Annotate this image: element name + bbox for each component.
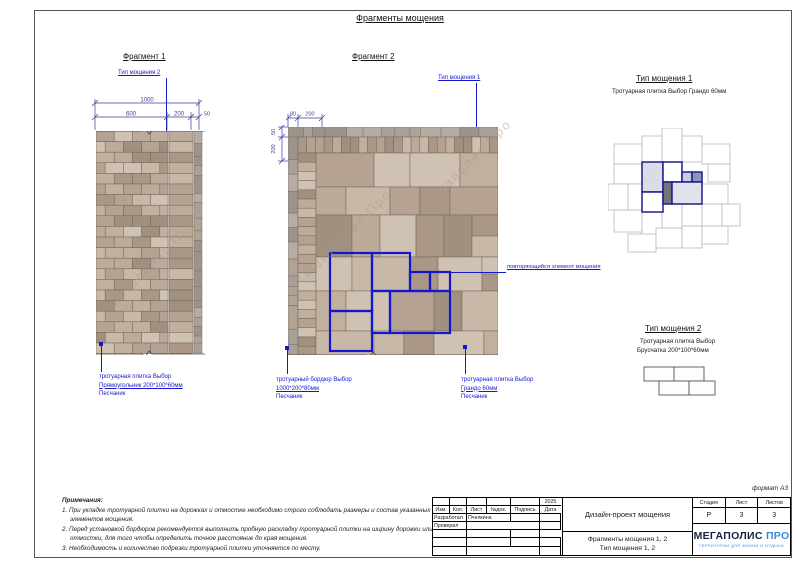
fragment2-border-leader bbox=[287, 350, 288, 374]
tb-cell bbox=[467, 530, 511, 538]
title-block: 2025 Изм. Кол. Лист №док. Подпись Дата Р… bbox=[432, 497, 791, 556]
sheet-title-line2: Тип мощения 1, 2 bbox=[600, 544, 655, 553]
logo-name-2: ПРО bbox=[766, 530, 789, 542]
fragment1-note-line2: Прямоугольник 200*100*60мм bbox=[99, 382, 183, 391]
fragment1-note: тротуарная плитка Выбор Прямоугольник 20… bbox=[99, 373, 183, 399]
tb-cell bbox=[511, 498, 540, 506]
dim-left-50: 50 bbox=[271, 129, 277, 135]
tb-cell bbox=[467, 498, 487, 506]
fragment1-note-leader bbox=[101, 346, 102, 372]
fragment2-tile-note-line1: тротуарная плитка Выбор bbox=[461, 376, 533, 385]
stage-header-row: Стадия Лист Листов bbox=[693, 498, 790, 508]
tb-cell bbox=[511, 547, 540, 555]
sheets-value: 3 bbox=[758, 508, 790, 523]
fragment2-border-note-line2: 1000*200*80мм bbox=[276, 385, 352, 394]
tb-cell bbox=[433, 530, 467, 538]
dim-top-80: 80 bbox=[290, 112, 296, 118]
notes-item-2: 2. Перед установкой бордюров рекомендует… bbox=[62, 525, 434, 544]
fragment2-border-note-line1: тротуарный бордюр Выбор bbox=[276, 376, 352, 385]
logo-name-1: МЕГАПОЛИС bbox=[694, 530, 763, 542]
tb-col-sign: Подпись bbox=[511, 506, 540, 514]
logo-tagline: ТЕРРИТОРИИ ДЛЯ ЖИЗНИ И ОТДЫХА bbox=[699, 543, 784, 548]
tb-cell bbox=[467, 547, 511, 555]
tb-cell bbox=[511, 538, 540, 546]
tb-cell bbox=[450, 498, 467, 506]
notes-item-1: 1. При укладке тротуарной плитки на доро… bbox=[62, 506, 434, 525]
tb-col-kol: Кол. bbox=[450, 506, 467, 514]
fragment2-tile-note: тротуарная плитка Выбор Грандо 60мм Песч… bbox=[461, 376, 533, 402]
tb-cell bbox=[433, 547, 467, 555]
tb-cell bbox=[511, 514, 540, 522]
type1-diagram bbox=[608, 128, 748, 258]
tb-cell bbox=[433, 538, 467, 546]
title-block-center: Дизайн-проект мощения Фрагменты мощения … bbox=[563, 498, 693, 555]
fragment1-dimensions: 1000 600 200 50 bbox=[86, 96, 218, 132]
tb-cell bbox=[540, 514, 561, 522]
stage-value-row: Р 3 3 bbox=[693, 508, 790, 524]
tb-cell bbox=[467, 538, 511, 546]
type2-line2: Брусчатка 200*100*60мм bbox=[637, 347, 709, 354]
fragment2-type-label: Тип мощения 1 bbox=[438, 75, 480, 81]
tb-checked-label: Проверил bbox=[433, 522, 467, 530]
type2-line1: Тротуарная плитка Выбор bbox=[640, 338, 715, 345]
tb-developed-label: Разработал bbox=[433, 514, 467, 522]
fragment2-top-dimensions: 80 200 bbox=[286, 104, 350, 128]
dim-top-200: 200 bbox=[305, 112, 314, 118]
fragment2-left-dimensions: 50 200 bbox=[262, 125, 288, 189]
fragment1-type-label: Тип мощения 2 bbox=[118, 70, 160, 76]
fragment2-border-note: тротуарный бордюр Выбор 1000*200*80мм Пе… bbox=[276, 376, 352, 402]
format-label: формат А3 bbox=[700, 485, 788, 492]
stage-value: Р bbox=[693, 508, 726, 523]
sheets-label: Листов bbox=[758, 498, 790, 507]
fragment1-title: Фрагмент 1 bbox=[123, 52, 166, 61]
title-block-revision-table: 2025 Изм. Кол. Лист №док. Подпись Дата Р… bbox=[433, 498, 563, 555]
company-logo: МЕГАПОЛИС ПРО ТЕРРИТОРИИ ДЛЯ ЖИЗНИ И ОТД… bbox=[693, 524, 790, 555]
fragment2-tile-leader bbox=[465, 349, 466, 374]
fragment2-tile-note-line3: Песчаник bbox=[461, 393, 533, 402]
type2-title: Тип мощения 2 bbox=[645, 324, 701, 333]
repeat-element-label: повторяющийся элемент мощения bbox=[507, 264, 601, 270]
notes-block: Примечания: 1. При укладке тротуарной пл… bbox=[62, 496, 434, 554]
type2-diagram bbox=[640, 364, 720, 398]
fragment2-border-note-line3: Песчаник bbox=[276, 393, 352, 402]
repeat-element-leader bbox=[446, 272, 506, 273]
dim-200: 200 bbox=[174, 112, 185, 118]
fragment1-paving bbox=[96, 131, 206, 355]
tb-col-list: Лист bbox=[467, 506, 487, 514]
tb-cell bbox=[433, 498, 450, 506]
page-title: Фрагменты мощения bbox=[0, 13, 800, 23]
sheet-value: 3 bbox=[726, 508, 759, 523]
tb-cell bbox=[540, 522, 561, 530]
notes-item-3: 3. Необходимость и количество подрезки т… bbox=[62, 544, 434, 554]
dim-50: 50 bbox=[204, 112, 210, 118]
tb-cell bbox=[540, 547, 561, 555]
sheet-title: Фрагменты мощения 1, 2 Тип мощения 1, 2 bbox=[563, 532, 692, 555]
stage-label: Стадия bbox=[693, 498, 726, 507]
tb-col-izm: Изм. bbox=[433, 506, 450, 514]
fragment1-note-line1: тротуарная плитка Выбор bbox=[99, 373, 183, 382]
logo-wordmark: МЕГАПОЛИС ПРО bbox=[694, 531, 790, 542]
dim-left-200: 200 bbox=[271, 144, 277, 153]
title-block-right: Стадия Лист Листов Р 3 3 МЕГАПОЛИС ПРО Т… bbox=[693, 498, 790, 555]
dim-600: 600 bbox=[126, 112, 137, 118]
dim-1000: 1000 bbox=[140, 98, 154, 104]
sheet-label: Лист bbox=[726, 498, 759, 507]
tb-col-date: Дата bbox=[540, 506, 561, 514]
notes-heading: Примечания: bbox=[62, 496, 434, 506]
tb-col-doc: №док. bbox=[487, 506, 511, 514]
type1-title: Тип мощения 1 bbox=[636, 74, 692, 83]
tb-developed-name: Пчелкина bbox=[467, 514, 511, 522]
tb-cell bbox=[540, 538, 561, 546]
project-title: Дизайн-проект мощения bbox=[563, 498, 692, 532]
fragment2-tile-note-line2: Грандо 60мм bbox=[461, 385, 533, 394]
sheet-title-line1: Фрагменты мощения 1, 2 bbox=[588, 535, 668, 544]
tb-cell bbox=[511, 530, 540, 538]
tb-cell bbox=[511, 522, 540, 530]
tb-cell bbox=[540, 530, 561, 538]
drawing-sheet: { "page": {"title": "Фрагменты мощения",… bbox=[0, 0, 800, 565]
fragment2-paving bbox=[288, 127, 498, 355]
tb-year: 2025 bbox=[540, 498, 561, 506]
tb-checked-name bbox=[467, 522, 511, 530]
fragment2-title: Фрагмент 2 bbox=[352, 52, 395, 61]
type1-subtitle: Тротуарная плитка Выбор Грандо 60мм bbox=[612, 88, 726, 95]
tb-cell bbox=[487, 498, 511, 506]
fragment1-note-line3: Песчаник bbox=[99, 390, 183, 399]
